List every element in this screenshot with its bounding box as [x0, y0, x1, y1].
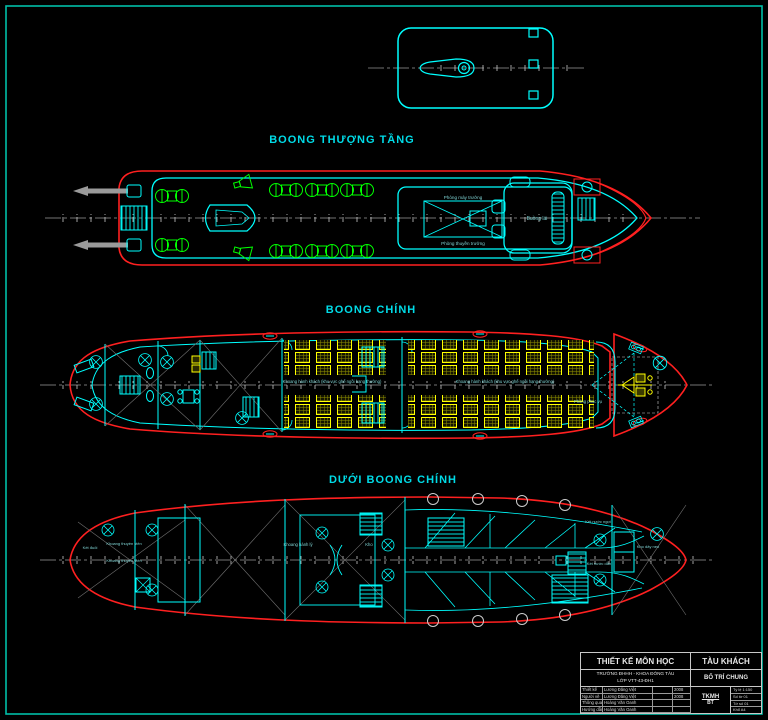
- anchor-windlass: [618, 374, 652, 396]
- room-label: Phòng thuyền trưởng: [441, 240, 485, 246]
- table-and-chairs: [306, 245, 339, 258]
- stairs: [120, 376, 140, 394]
- table-and-chairs: [270, 184, 303, 197]
- org-line2: LỚP VTT-43-ĐH1: [617, 678, 654, 685]
- table-and-chairs: [156, 239, 189, 252]
- stairs: [360, 513, 382, 535]
- boom-base: [127, 239, 141, 251]
- document-code: TKMH BT: [691, 687, 731, 713]
- lower-deck-plan: Két đuôi Khoang thuyền viên Khoang thuyề…: [40, 494, 715, 627]
- tank-symbol: [146, 524, 158, 536]
- upper-deck-plan: Phòng máy trưởng Phòng thuyền trưởng Buồ…: [45, 171, 700, 265]
- equipment-box: [192, 356, 200, 363]
- room-label: Phòng phục vụ: [574, 399, 603, 404]
- stairs: [360, 585, 382, 607]
- table-and-chairs: [341, 184, 374, 197]
- seat: [492, 200, 505, 213]
- room-label: Phòng máy trưởng: [444, 194, 483, 200]
- main-deck-plan: Khoang hành khách (khu vực ghế ngồi hạng…: [40, 331, 712, 439]
- seat: [492, 225, 505, 238]
- pump-unit: [568, 552, 586, 574]
- sheet-meta: Tỷ lệ 1:150 Số tờ 01 Tờ số 01 Khổ A4: [731, 687, 761, 713]
- name-cell: Hoàng Văn Oanh: [603, 707, 653, 714]
- chair: [195, 390, 199, 394]
- year-cell: [673, 707, 691, 714]
- main-deck-title: BOONG CHÍNH: [306, 304, 436, 316]
- boom-arrow: [73, 186, 88, 196]
- tank-symbol: [651, 528, 664, 541]
- tank-symbol: [382, 569, 394, 581]
- table-and-chairs: [341, 245, 374, 258]
- stern-stairs: [121, 206, 147, 230]
- compartment-label: Khoang hành khách (khu vực ghế ngồi hạng…: [283, 379, 382, 384]
- lower-deck-title: DƯỚI BOONG CHÍNH: [308, 474, 478, 486]
- tank-symbol: [382, 539, 394, 551]
- tank-symbol: [90, 356, 103, 369]
- stairs: [552, 575, 588, 603]
- stairs: [362, 403, 384, 423]
- table-and-chairs: [156, 190, 189, 203]
- station-ticks: [430, 64, 580, 72]
- vessel-name: TÀU KHÁCH: [691, 653, 761, 670]
- boom-arrow: [73, 240, 88, 250]
- hatch-brace: [136, 578, 150, 592]
- cad-sheet: Phòng máy trưởng Phòng thuyền trưởng Buồ…: [0, 0, 768, 720]
- table-and-chairs: [270, 245, 303, 258]
- boom-base: [127, 185, 141, 197]
- meta-sheets: Số tờ 01: [731, 694, 761, 701]
- stairs: [428, 518, 464, 546]
- tank-symbol: [161, 393, 174, 406]
- project-title: THIẾT KẾ MÔN HỌC: [581, 653, 690, 670]
- room-label: Buồng lái: [527, 216, 548, 222]
- org-line1: TRƯỜNG ĐHHH - KHOA ĐÓNG TÀU: [597, 671, 675, 678]
- compartment-label: Két nước ngọt: [585, 519, 611, 524]
- meta-scale: Tỷ lệ 1:150: [731, 687, 761, 694]
- toilet: [147, 391, 154, 402]
- loudspeaker-icon: [232, 174, 252, 192]
- chair: [178, 399, 182, 403]
- compartment-label: Két nước dằn: [587, 561, 611, 566]
- compartment-label: Kho: [365, 542, 373, 547]
- upper-deck-title: BOONG THƯỢNG TẦNG: [252, 134, 432, 146]
- compartment-label: Khoang hành lý: [283, 542, 313, 547]
- table: [183, 390, 194, 403]
- stairs: [362, 347, 384, 367]
- seat-bank-fwd-stbd: [408, 395, 594, 430]
- drawing-title: BỐ TRÍ CHUNG: [691, 670, 761, 686]
- toilet: [147, 368, 154, 379]
- hatch-symbol: [653, 356, 667, 370]
- compartment-label: Kho dây neo: [637, 544, 660, 549]
- tank-symbol: [102, 524, 114, 536]
- doc-sub: BT: [707, 700, 714, 706]
- bow-stairs: [578, 198, 595, 220]
- vent-hatch: [529, 91, 538, 99]
- chair: [195, 399, 199, 403]
- compartment-label: Khoang thuyền viên: [106, 541, 141, 546]
- title-block: THIẾT KẾ MÔN HỌC TRƯỜNG ĐHHH - KHOA ĐÓNG…: [580, 652, 762, 714]
- console: [552, 192, 564, 244]
- seat-bank-fwd-port: [408, 340, 594, 375]
- tank-symbol: [594, 534, 606, 546]
- role-cell: Hướng dẫn: [581, 707, 603, 714]
- compartment-label: Khoang thuyền viên: [106, 558, 141, 563]
- tank-symbol: [139, 354, 152, 367]
- compartment-label: Khoang hành khách (khu vực ghế ngồi hạng…: [456, 379, 555, 384]
- stairs: [202, 352, 216, 369]
- table-and-chairs: [306, 184, 339, 197]
- tank-symbol: [161, 356, 174, 369]
- chair: [178, 390, 182, 394]
- compartment-label: Két đuôi: [83, 545, 98, 550]
- meta-size: Khổ A4: [731, 707, 761, 713]
- top-view-plan: [368, 28, 585, 108]
- meta-sheet-no: Tờ số 01: [731, 701, 761, 708]
- sign-cell: [653, 707, 673, 714]
- equipment-box: [192, 365, 200, 372]
- drawing-area: Phòng máy trưởng Phòng thuyền trưởng Buồ…: [0, 0, 768, 720]
- tank-symbol: [594, 574, 606, 586]
- organization: TRƯỜNG ĐHHH - KHOA ĐÓNG TÀU LỚP VTT-43-Đ…: [581, 670, 690, 686]
- signature-table: Thiết kế Lương Đăng Việt 2008 Người vẽ L…: [581, 687, 691, 713]
- stairs: [243, 397, 259, 417]
- vent-hatch: [529, 29, 538, 37]
